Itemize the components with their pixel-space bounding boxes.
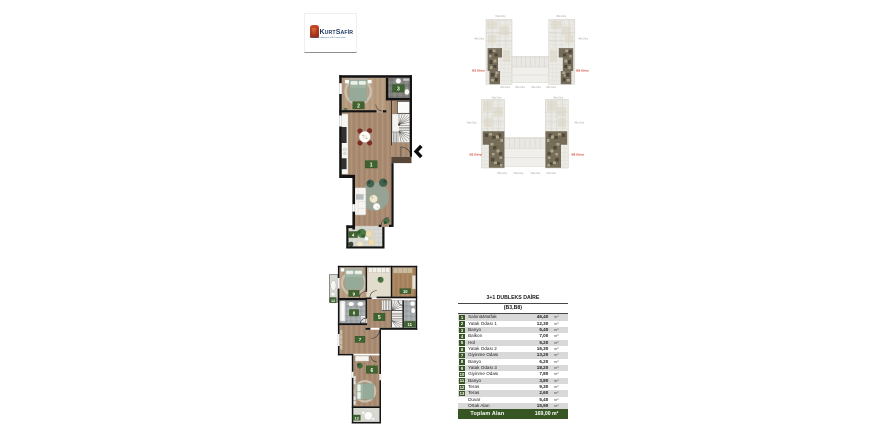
svg-text:Villa Giriş: Villa Giriş xyxy=(474,38,485,41)
svg-text:Villa Giriş: Villa Giriş xyxy=(491,97,502,100)
svg-text:Villa Giriş: Villa Giriş xyxy=(515,86,526,89)
svg-text:Villa Giriş: Villa Giriş xyxy=(497,172,508,175)
svg-text:Villa Giriş: Villa Giriş xyxy=(553,97,564,100)
svg-text:12: 12 xyxy=(331,299,335,303)
svg-text:Villa Giriş: Villa Giriş xyxy=(500,86,511,89)
svg-text:2: 2 xyxy=(357,103,360,109)
svg-text:11: 11 xyxy=(408,322,413,327)
svg-text:Villa Giriş: Villa Giriş xyxy=(546,86,557,89)
svg-text:B3 Girişi: B3 Girişi xyxy=(470,153,483,157)
svg-text:Villa Giriş: Villa Giriş xyxy=(578,38,589,41)
svg-text:13: 13 xyxy=(354,416,358,420)
svg-text:Villa Giriş: Villa Giriş xyxy=(574,122,585,125)
svg-text:Villa Giriş: Villa Giriş xyxy=(466,122,477,125)
svg-text:Villa Giriş: Villa Giriş xyxy=(495,15,506,18)
svg-text:6: 6 xyxy=(371,368,374,374)
svg-text:5: 5 xyxy=(378,315,381,321)
svg-text:1: 1 xyxy=(370,162,373,168)
svg-text:3: 3 xyxy=(397,86,400,92)
svg-text:Villa Giriş: Villa Giriş xyxy=(513,172,524,175)
svg-text:B8 Girişi: B8 Girişi xyxy=(576,69,589,73)
svg-text:Villa Giriş: Villa Giriş xyxy=(546,172,557,175)
svg-text:B3 Girişi: B3 Girişi xyxy=(472,69,485,73)
svg-text:Villa Giriş: Villa Giriş xyxy=(556,15,567,18)
svg-text:10: 10 xyxy=(403,289,408,294)
svg-text:B8 Girişi: B8 Girişi xyxy=(572,153,585,157)
svg-text:Villa Giriş: Villa Giriş xyxy=(530,172,541,175)
svg-text:Villa Giriş: Villa Giriş xyxy=(531,86,542,89)
